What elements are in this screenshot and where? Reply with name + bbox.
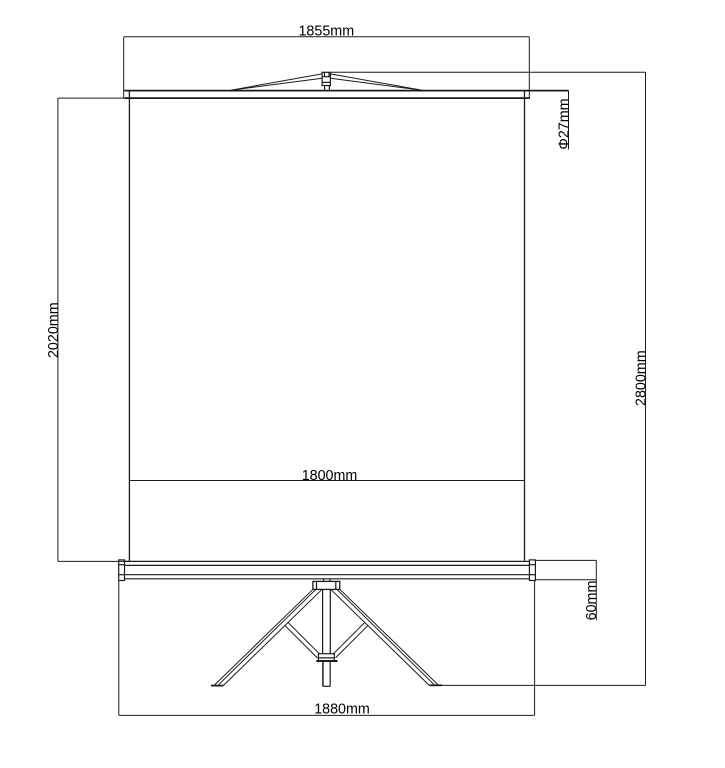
svg-text:1880mm: 1880mm bbox=[314, 702, 370, 718]
svg-text:2020mm: 2020mm bbox=[46, 302, 62, 358]
svg-text:Φ27mm: Φ27mm bbox=[556, 98, 572, 149]
svg-text:60mm: 60mm bbox=[584, 581, 600, 621]
svg-text:2800mm: 2800mm bbox=[634, 350, 650, 406]
svg-text:1800mm: 1800mm bbox=[302, 468, 358, 484]
svg-text:1855mm: 1855mm bbox=[298, 24, 354, 40]
